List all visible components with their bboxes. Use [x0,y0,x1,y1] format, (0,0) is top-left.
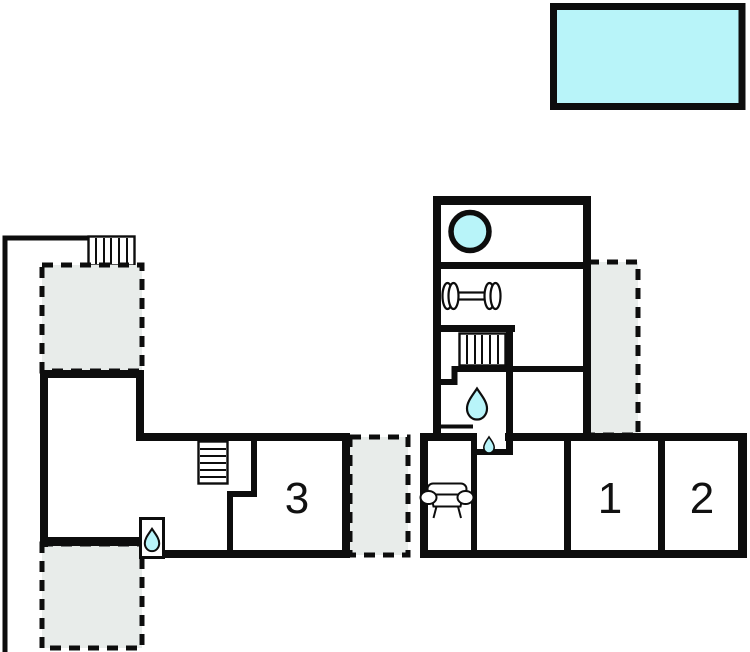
swimming-pool-icon [554,7,743,107]
dumbbell-plate [449,283,459,309]
terrace-bottom-left [42,544,142,648]
wall-segment [342,433,350,558]
room-label-1: 1 [598,474,622,523]
wall-segment [251,441,257,497]
wall-segment [738,433,747,558]
lower-right-house: 1 2 [420,433,747,558]
sofa-leg [458,507,461,519]
sofa-armrest [458,491,474,504]
wall-segment [433,196,591,205]
terrace-right [588,262,638,435]
hot-tub-icon [451,213,489,251]
wall-segment [433,196,441,441]
staircase-icon [460,334,506,366]
wall-segment [455,366,591,372]
wall-segment [441,379,458,385]
wall-segment [40,370,48,547]
floor-plan-canvas: 3 [0,0,750,652]
terrace-top-left [42,265,142,371]
dumbbell-plate [491,283,501,309]
sofa-leg [434,507,437,519]
wall-segment [160,550,350,558]
wall-segment [136,433,350,441]
terrace-middle [350,437,408,555]
wall-segment [564,433,571,558]
wall-segment [658,433,665,558]
exterior-staircase-icon [89,237,135,266]
wall-segment [40,370,143,378]
wall-segment [505,433,747,441]
sofa-icon [421,484,474,519]
wall-segment [40,537,143,546]
staircase-icon [199,442,228,484]
floor-plan: 3 [0,0,750,652]
sofa-armrest [421,491,437,504]
upper-right-house [433,196,591,455]
wall-segment [441,262,583,269]
swimming-pool [554,7,743,107]
dumbbell-icon [443,283,501,309]
left-house: 3 [40,370,350,558]
wall-segment [420,550,747,558]
room-label-3: 3 [285,474,309,523]
room-label-2: 2 [690,474,714,523]
wall-segment [583,196,591,441]
shower-cubicle [141,519,164,558]
wall-segment [441,425,473,429]
wall-segment [441,325,515,332]
shower-drop-icon [484,437,494,453]
wall-segment [227,491,233,552]
wall-segment [136,370,144,439]
shower-drop-icon [467,389,487,420]
